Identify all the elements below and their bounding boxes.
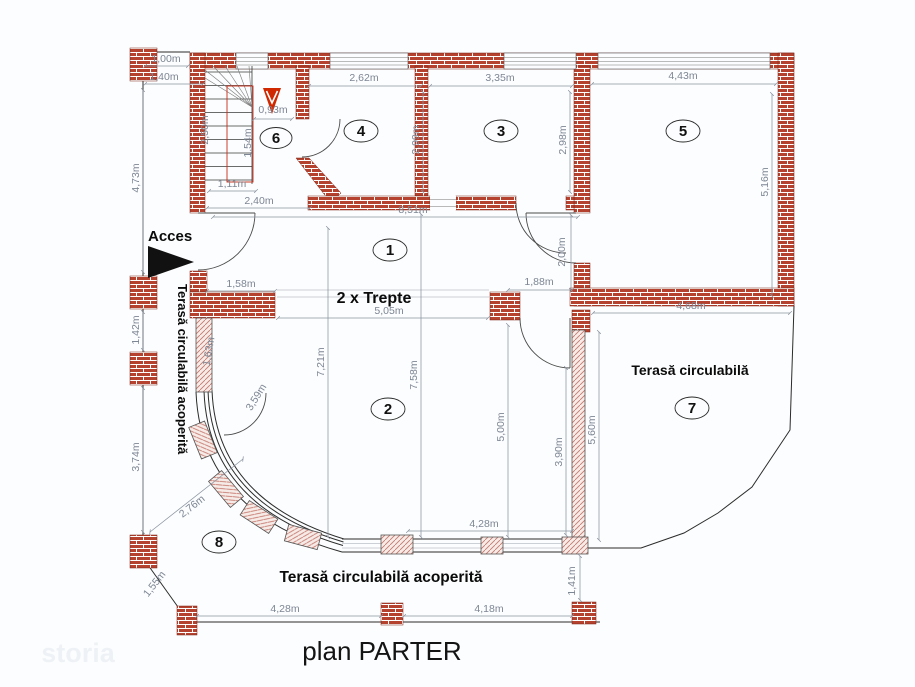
dimension-lines (143, 66, 790, 616)
watermark: storia (41, 638, 116, 668)
dim-label: 2,62m (349, 72, 378, 84)
terrace-boundary-lines (143, 48, 794, 622)
threshold-opening (430, 196, 456, 210)
dim-label: 4,68m (676, 300, 705, 312)
hatched-columns (189, 318, 588, 554)
dim-label: 3,35m (485, 72, 514, 84)
dim-label: 2,99m (410, 125, 422, 154)
dim-label: 5,00m (495, 412, 507, 441)
dim-label: 1,00m (151, 53, 180, 65)
dim-label: 0,93m (258, 104, 287, 116)
floor-plan-svg: 1,00m 1,40m 4,73m 1,42m 3,74m 2,62m 3,35… (0, 0, 915, 687)
dim-label: 1,55m (141, 569, 169, 600)
dim-label: 5,60m (586, 415, 598, 444)
dim-label: 7,58m (408, 360, 420, 389)
room4-door-arc (302, 119, 340, 157)
dim-label: 1,54m (242, 128, 254, 157)
hall-door-arc (526, 213, 576, 263)
dim-label: 1,11m (218, 178, 247, 190)
dim-label: 2,76m (177, 493, 208, 521)
railing (342, 539, 588, 552)
window-icon (598, 53, 770, 69)
room-label-7: 7 (688, 400, 696, 417)
dim-label: 4,28m (270, 603, 299, 615)
dim-label: 8,51m (398, 204, 427, 216)
floor-plan-page: 1,00m 1,40m 4,73m 1,42m 3,74m 2,62m 3,35… (0, 0, 915, 687)
window-icon (330, 53, 408, 69)
dim-label: 4,18m (474, 603, 503, 615)
stairs (205, 66, 281, 184)
room-label-8: 8 (215, 534, 223, 551)
room-labels: 1 2 3 4 5 6 7 8 (202, 120, 709, 553)
dim-label: 2,98m (557, 125, 569, 154)
dim-label: 1,58m (226, 278, 255, 290)
room-label-1: 1 (386, 242, 394, 259)
room-label-6: 6 (272, 130, 280, 147)
entrance-door-arc (198, 213, 255, 270)
brick-walls (130, 48, 794, 635)
dim-label: 4,43m (668, 70, 697, 82)
terasa-bottom-label: Terasă circulabilă acoperită (279, 569, 482, 586)
trepte-label: 2 x Trepte (337, 290, 412, 307)
terasa-right-label: Terasă circulabilă (631, 362, 748, 378)
dim-label: 2,00m (556, 237, 568, 266)
dim-label: 5,16m (759, 167, 771, 196)
acces-label: Acces (148, 228, 192, 245)
dim-label: 1,40m (149, 71, 178, 83)
room-label-2: 2 (384, 401, 392, 418)
room-label-4: 4 (357, 123, 366, 140)
dim-label: 4,28m (469, 518, 498, 530)
dim-label: 1,88m (524, 276, 553, 288)
dim-label: 1,42m (130, 315, 142, 344)
room-label-5: 5 (679, 123, 687, 140)
terasa-left-label: Terasă circulabilă acoperită (175, 284, 190, 455)
dim-label: 3,90m (553, 437, 565, 466)
room2-door-arc (520, 318, 570, 368)
dim-label: 2,50m (199, 115, 211, 144)
dim-label: 3,74m (130, 442, 142, 471)
dim-label: 1,41m (566, 566, 578, 595)
window-icon (504, 53, 576, 69)
dim-label: 7,21m (315, 347, 327, 376)
acces-arrow-icon (148, 246, 194, 278)
dim-label: 4,73m (130, 163, 142, 192)
dim-label: 2,40m (244, 195, 273, 207)
page-title: plan PARTER (302, 636, 461, 666)
room-label-3: 3 (497, 123, 505, 140)
